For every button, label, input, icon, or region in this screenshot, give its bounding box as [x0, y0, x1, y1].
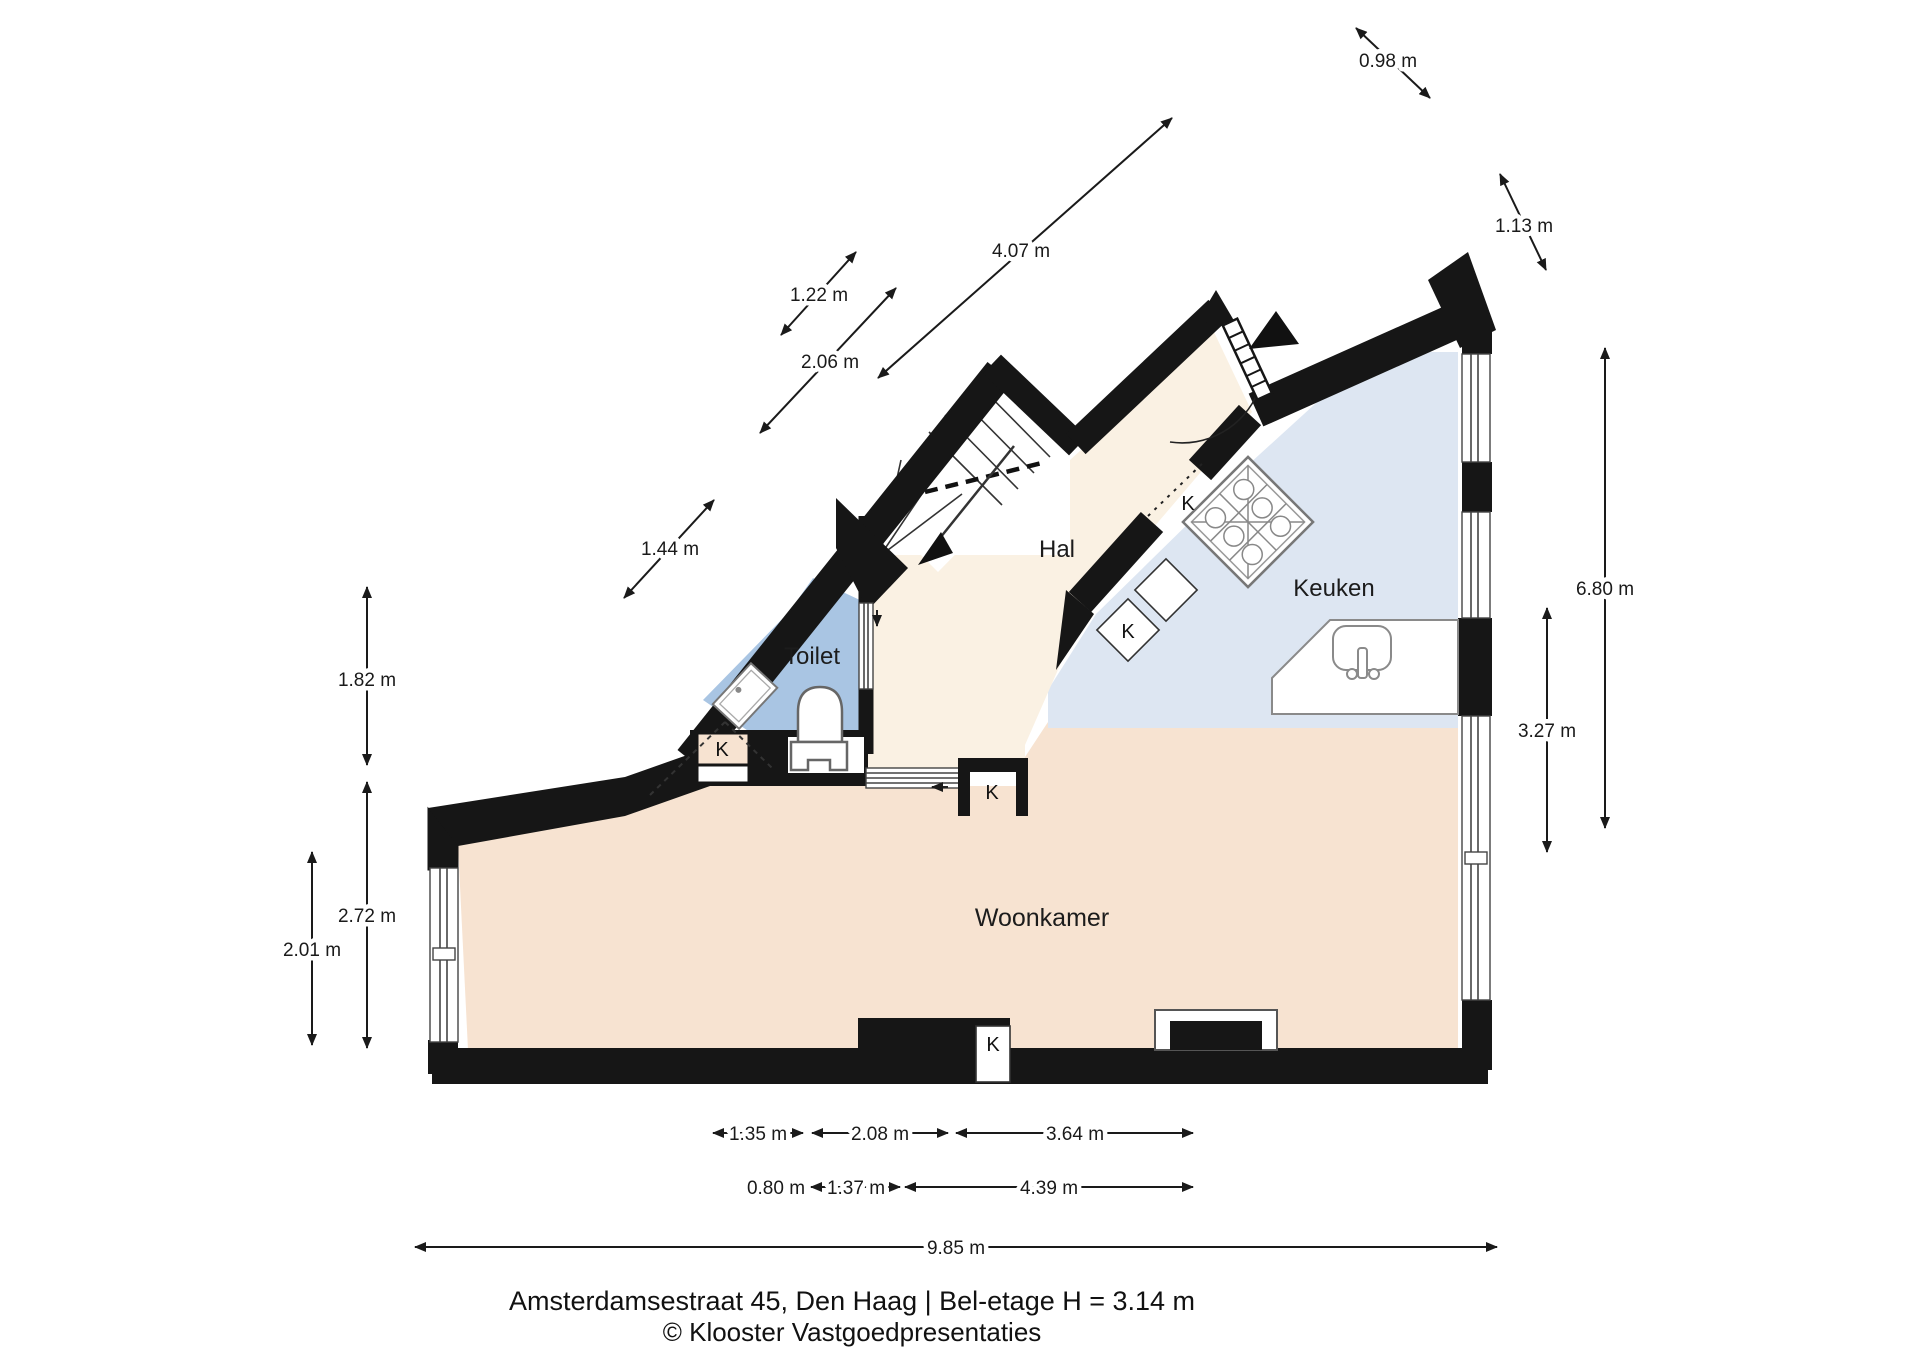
- threshold-steps: [866, 768, 964, 788]
- dimension-bottom-row1-right: 3.64 m: [956, 1124, 1193, 1145]
- dimension-left-mid: 2.72 m: [338, 782, 396, 1048]
- dimension-diagonal-mid: 2.06 m: [760, 288, 896, 433]
- svg-text:1.35 m: 1.35 m: [729, 1124, 787, 1145]
- svg-text:0.80 m: 0.80 m: [747, 1178, 805, 1199]
- svg-text:1.22 m: 1.22 m: [790, 285, 848, 306]
- svg-text:2.72 m: 2.72 m: [338, 906, 396, 927]
- closet-marker-facade: K: [986, 1034, 1000, 1056]
- room-label-toilet: Toilet: [784, 643, 840, 670]
- floorplan-page: { "meta": { "address_line": "Amsterdamse…: [0, 0, 1920, 1358]
- footer-credit: © Klooster Vastgoedpresentaties: [663, 1317, 1042, 1347]
- closet-left-shelf: [697, 765, 749, 783]
- dimension-bottom-row2-right: 4.39 m: [905, 1178, 1193, 1199]
- svg-text:2.08 m: 2.08 m: [851, 1124, 909, 1145]
- closet-marker-left: K: [715, 739, 729, 761]
- dimension-bottom-row1-left: 1.35 m: [713, 1124, 803, 1145]
- closet-marker-hal-bottom: K: [985, 782, 999, 804]
- dimension-diagonal-lower: 1.44 m: [624, 500, 714, 598]
- footer-address: Amsterdamsestraat 45, Den Haag | Bel-eta…: [509, 1286, 1195, 1316]
- dimension-bottom-total: 9.85 m: [415, 1238, 1497, 1259]
- floorplan-svg: Hal Keuken Toilet Woonkamer K K K K K 0.…: [0, 0, 1920, 1358]
- svg-text:3.64 m: 3.64 m: [1046, 1124, 1104, 1145]
- wc-icon: [798, 687, 842, 742]
- dimension-right-inner: 3.27 m: [1518, 608, 1576, 852]
- dimension-left-upper: 1.82 m: [338, 587, 396, 765]
- svg-text:2.06 m: 2.06 m: [801, 352, 859, 373]
- dimension-diagonal-upper: 1.22 m: [781, 252, 856, 335]
- room-label-woonkamer: Woonkamer: [975, 904, 1109, 932]
- closet-marker-counter: K: [1121, 621, 1135, 643]
- dimension-left-lower: 2.01 m: [283, 852, 341, 1045]
- svg-text:6.80 m: 6.80 m: [1576, 579, 1634, 600]
- svg-text:1.37 m: 1.37 m: [827, 1178, 885, 1199]
- dimension-right-outer: 6.80 m: [1576, 348, 1634, 828]
- dimension-bottom-row2-left: 0.80 m: [747, 1178, 805, 1199]
- svg-text:4.07 m: 4.07 m: [992, 241, 1050, 262]
- svg-text:1.82 m: 1.82 m: [338, 670, 396, 691]
- closet-marker-hal-niche: K: [1181, 493, 1195, 515]
- svg-text:3.27 m: 3.27 m: [1518, 721, 1576, 742]
- dimension-bottom-row2-mid: 1.37 m: [811, 1178, 900, 1199]
- toilet-pocket-door: [859, 603, 873, 689]
- svg-text:1.13 m: 1.13 m: [1495, 216, 1553, 237]
- svg-text:2.01 m: 2.01 m: [283, 940, 341, 961]
- room-label-hal: Hal: [1039, 536, 1075, 563]
- dimension-diagonal-long: 4.07 m: [878, 118, 1172, 378]
- svg-text:4.39 m: 4.39 m: [1020, 1178, 1078, 1199]
- svg-text:0.98 m: 0.98 m: [1359, 51, 1417, 72]
- window-left: [430, 868, 458, 1042]
- dimension-top-right-upper: 0.98 m: [1356, 28, 1430, 98]
- svg-text:9.85 m: 9.85 m: [927, 1238, 985, 1259]
- dimension-top-right-lower: 1.13 m: [1495, 174, 1553, 270]
- window-right-upper: [1462, 354, 1490, 462]
- dimension-bottom-row1-mid: 2.08 m: [812, 1124, 948, 1145]
- svg-text:1.44 m: 1.44 m: [641, 539, 699, 560]
- north-arrow-icon: [1249, 311, 1299, 349]
- window-right-mid: [1462, 512, 1490, 618]
- window-right-lower: [1462, 716, 1490, 1000]
- room-label-keuken: Keuken: [1293, 575, 1374, 602]
- sink-faucet: [1358, 648, 1367, 678]
